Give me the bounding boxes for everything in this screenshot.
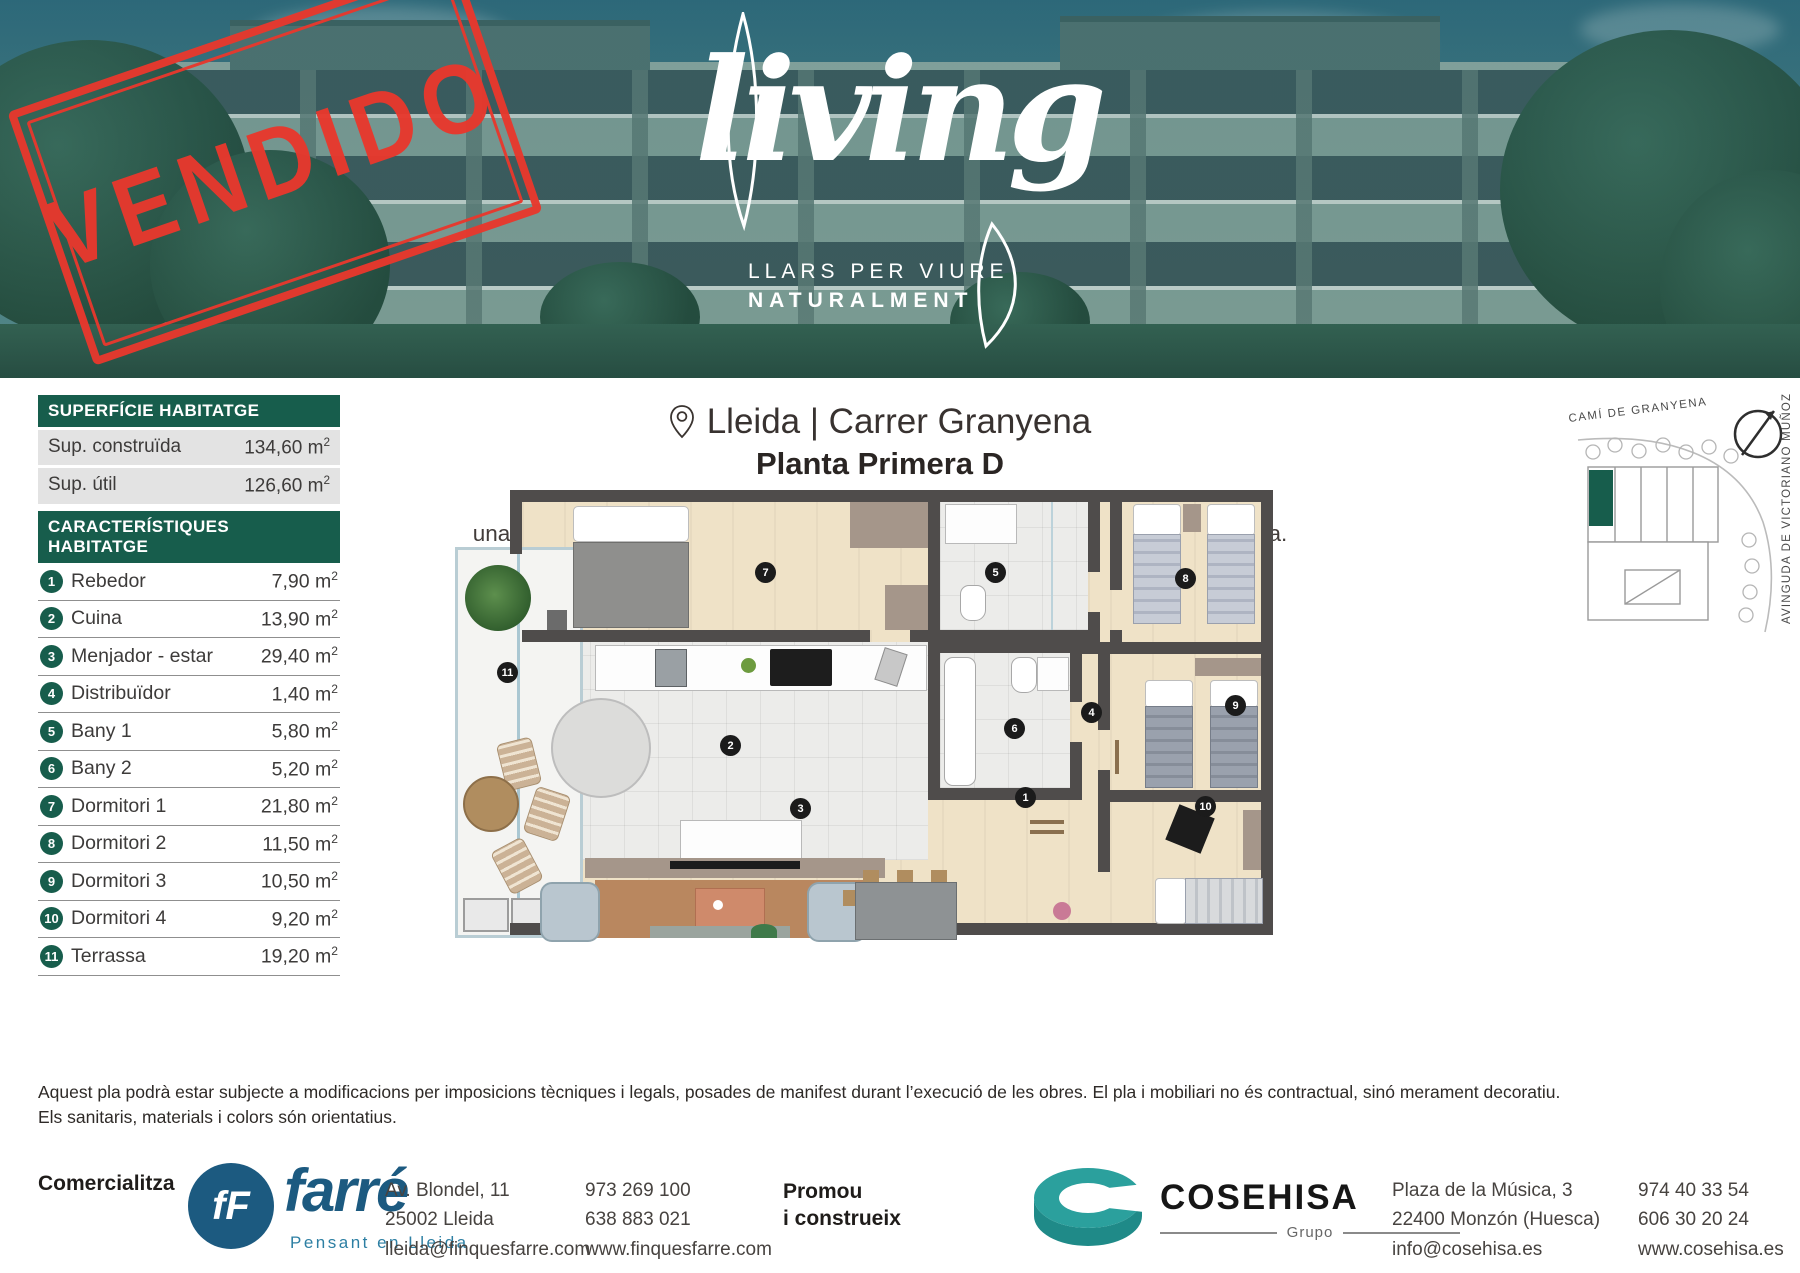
room-label: Bany 2 xyxy=(71,757,132,780)
group-label: Grupo xyxy=(1287,1224,1334,1241)
doorway xyxy=(1070,702,1082,742)
bed-pillows xyxy=(1207,504,1255,536)
wall xyxy=(928,630,1100,653)
toilet xyxy=(960,585,986,621)
doorway xyxy=(1088,572,1100,612)
wall xyxy=(1261,490,1273,935)
bed-pillows xyxy=(1133,504,1181,536)
room-label: Dormitori 3 xyxy=(71,870,166,893)
divider-line xyxy=(1160,1232,1277,1234)
table-row: Sup. construïda 134,60 m2 xyxy=(38,430,340,465)
plan-marker: 2 xyxy=(720,735,741,756)
floor-subtitle: Planta Primera D xyxy=(430,446,1330,482)
room-area: 13,90 m2 xyxy=(261,607,338,632)
room-number-badge: 3 xyxy=(40,645,63,668)
address-line: 25002 Lleida xyxy=(385,1205,590,1234)
bath-sink-counter xyxy=(945,504,1017,544)
room-area: 1,40 m2 xyxy=(272,682,338,707)
list-item: 4 Distribuïdor 1,40 m2 xyxy=(38,676,340,714)
hall-bench xyxy=(1030,830,1064,834)
plant xyxy=(751,924,777,938)
plan-marker: 11 xyxy=(497,662,518,683)
plan-marker: 4 xyxy=(1081,702,1102,723)
bed-pillows xyxy=(1145,680,1193,708)
list-item: 9 Dormitori 3 10,50 m2 xyxy=(38,863,340,901)
plan-marker: 6 xyxy=(1004,718,1025,739)
flowers xyxy=(1053,902,1071,920)
room-area: 5,20 m2 xyxy=(272,757,338,782)
row-label: Sup. construïda xyxy=(48,436,181,459)
phone-number: 973 269 100 xyxy=(585,1176,772,1205)
desk xyxy=(1195,658,1261,676)
room-area: 11,50 m2 xyxy=(262,832,338,857)
phone-number: 638 883 021 xyxy=(585,1205,772,1234)
plan-marker: 3 xyxy=(790,798,811,819)
armchair xyxy=(540,882,600,942)
room-label: Cuina xyxy=(71,607,122,630)
kitchen-table xyxy=(551,698,651,798)
room-area: 19,20 m2 xyxy=(261,944,338,969)
list-item: 10 Dormitori 4 9,20 m2 xyxy=(38,901,340,939)
row-value: 126,60 m2 xyxy=(244,474,330,497)
hall-bench xyxy=(1030,820,1064,824)
room-area: 21,80 m2 xyxy=(261,794,338,819)
plan-marker: 9 xyxy=(1225,695,1246,716)
dining-chair xyxy=(897,870,913,882)
room-number-badge: 2 xyxy=(40,607,63,630)
wall xyxy=(1082,642,1273,654)
features-panel: CARACTERÍSTIQUES HABITATGE 1 Rebedor 7,9… xyxy=(38,511,340,976)
room-number-badge: 10 xyxy=(40,907,63,930)
commercializer-label: Comercialitza xyxy=(38,1172,175,1196)
logo-tagline-2: NATURALMENT xyxy=(748,289,973,313)
row-label: Sup. útil xyxy=(48,474,117,497)
room-label: Dormitori 1 xyxy=(71,795,166,818)
room-area: 5,80 m2 xyxy=(272,719,338,744)
location-title-row: Lleida | Carrer Granyena xyxy=(430,402,1330,442)
room-label: Terrassa xyxy=(71,945,146,968)
plan-marker: 10 xyxy=(1195,796,1216,817)
tv xyxy=(670,861,800,869)
room-number-badge: 11 xyxy=(40,945,63,968)
dining-chair xyxy=(843,890,855,906)
plan-marker: 5 xyxy=(985,562,1006,583)
flyer-page: living LLARS PER VIURE NATURALMENT VENDI… xyxy=(0,0,1800,1273)
farre-address-block: Av. Blondel, 11 25002 Lleida lleida@finq… xyxy=(385,1176,590,1264)
row-value: 134,60 m2 xyxy=(244,436,330,459)
terrace-table xyxy=(463,776,519,832)
bed-duvet xyxy=(1210,706,1258,788)
wardrobe xyxy=(850,502,928,548)
surface-panel-title: SUPERFÍCIE HABITATGE xyxy=(38,395,340,427)
phone-number: 974 40 33 54 xyxy=(1638,1176,1784,1205)
street-label-top: CAMÍ DE GRANYENA xyxy=(1568,395,1708,425)
bathtub xyxy=(944,657,976,786)
terrace-plant xyxy=(465,565,531,631)
room-number-badge: 9 xyxy=(40,870,63,893)
bed-duvet xyxy=(1145,706,1193,788)
shower-glass xyxy=(1051,502,1053,630)
hall-bench xyxy=(1115,740,1119,774)
list-item: 7 Dormitori 1 21,80 m2 xyxy=(38,788,340,826)
room-label: Dormitori 4 xyxy=(71,907,166,930)
room-label: Dormitori 2 xyxy=(71,832,166,855)
address-line: Plaza de la Música, 3 xyxy=(1392,1176,1600,1205)
room-area: 29,40 m2 xyxy=(261,644,338,669)
location-pin-icon xyxy=(669,404,695,440)
floor-plan: 1 2 3 4 5 6 7 8 9 10 11 xyxy=(455,490,1335,938)
website-text: www.cosehisa.es xyxy=(1638,1235,1784,1264)
bed-duvet xyxy=(1133,534,1181,624)
features-panel-title: CARACTERÍSTIQUES HABITATGE xyxy=(38,511,340,563)
address-line: Av. Blondel, 11 xyxy=(385,1176,590,1205)
room-number-badge: 7 xyxy=(40,795,63,818)
wall xyxy=(1098,790,1273,802)
list-item: 1 Rebedor 7,90 m2 xyxy=(38,563,340,601)
plan-marker: 1 xyxy=(1015,787,1036,808)
room-label: Menjador - estar xyxy=(71,645,213,668)
logo-wordmark: living xyxy=(695,40,1100,182)
farre-monogram: fF xyxy=(212,1184,250,1229)
room-area: 7,90 m2 xyxy=(272,569,338,594)
email-text: info@cosehisa.es xyxy=(1392,1235,1600,1264)
cosehisa-address-block: Plaza de la Música, 3 22400 Monzón (Hues… xyxy=(1392,1176,1600,1264)
room-number-badge: 5 xyxy=(40,720,63,743)
wall xyxy=(510,490,522,554)
doorway xyxy=(870,630,910,642)
address-line: 22400 Monzón (Huesca) xyxy=(1392,1205,1600,1234)
bed-duvet xyxy=(573,542,689,628)
logo-tagline-1: LLARS PER VIURE xyxy=(748,260,1009,284)
terrace-fixture xyxy=(547,610,567,630)
kitchen-cooktop xyxy=(770,649,832,686)
bed-duvet xyxy=(1185,878,1263,924)
room-number-badge: 1 xyxy=(40,570,63,593)
toilet xyxy=(1011,657,1037,693)
cosehisa-wordmark: COSEHISA xyxy=(1160,1178,1359,1218)
kitchen-island xyxy=(680,820,802,860)
plan-marker: 7 xyxy=(755,562,776,583)
doorway xyxy=(1110,590,1122,630)
page-title: Lleida | Carrer Granyena xyxy=(707,402,1092,442)
hero-photo: living LLARS PER VIURE NATURALMENT VENDI… xyxy=(0,0,1800,378)
cosehisa-logo xyxy=(1028,1160,1148,1252)
street-label-right: AVINGUDA DE VICTORIANO MUÑOZ xyxy=(1780,393,1793,624)
farre-logo: fF xyxy=(188,1163,274,1249)
list-item: 3 Menjador - estar 29,40 m2 xyxy=(38,638,340,676)
list-item: 5 Bany 1 5,80 m2 xyxy=(38,713,340,751)
table-row: Sup. útil 126,60 m2 xyxy=(38,468,340,503)
terrace-planter xyxy=(463,898,509,932)
doorway xyxy=(1098,730,1110,770)
disclaimer: Aquest pla podrà estar subjecte a modifi… xyxy=(38,1080,1774,1131)
cosehisa-contact-block: 974 40 33 54 606 30 20 24 www.cosehisa.e… xyxy=(1638,1176,1784,1264)
room-label: Distribuïdor xyxy=(71,682,171,705)
kitchen-plate xyxy=(741,658,756,673)
email-text: lleida@finquesfarre.com xyxy=(385,1235,590,1264)
dining-chair xyxy=(931,870,947,882)
nightstand xyxy=(1183,504,1201,532)
wardrobe xyxy=(885,585,928,630)
kitchen-sink xyxy=(655,649,687,687)
room-label: Bany 1 xyxy=(71,720,132,743)
wall xyxy=(1098,802,1110,872)
list-item: 6 Bany 2 5,20 m2 xyxy=(38,751,340,789)
desk xyxy=(1243,810,1261,870)
promoter-label: Promou i construeix xyxy=(783,1178,901,1233)
dining-chair xyxy=(863,870,879,882)
disclaimer-line: Els sanitaris, materials i colors són or… xyxy=(38,1105,1774,1130)
wall xyxy=(510,490,1273,502)
room-label: Rebedor xyxy=(71,570,146,593)
surface-panel: SUPERFÍCIE HABITATGE Sup. construïda 134… xyxy=(38,395,340,504)
room-area: 10,50 m2 xyxy=(261,869,338,894)
wall xyxy=(522,630,928,642)
disclaimer-line: Aquest pla podrà estar subjecte a modifi… xyxy=(38,1080,1774,1105)
table-decor xyxy=(713,900,723,910)
bed-pillows xyxy=(1155,878,1187,924)
website-text: www.finquesfarre.com xyxy=(585,1235,772,1264)
room-number-badge: 4 xyxy=(40,682,63,705)
list-item: 8 Dormitori 2 11,50 m2 xyxy=(38,826,340,864)
room-area: 9,20 m2 xyxy=(272,907,338,932)
list-item: 11 Terrassa 19,20 m2 xyxy=(38,938,340,976)
room-number-badge: 8 xyxy=(40,832,63,855)
farre-contact-block: 973 269 100 638 883 021 www.finquesfarre… xyxy=(585,1176,772,1264)
site-map: CAMÍ DE GRANYENA AVINGUDA DE VICTORIANO … xyxy=(1553,392,1798,637)
living-logo: living LLARS PER VIURE NATURALMENT xyxy=(640,12,1100,352)
wall xyxy=(928,788,1082,800)
bath-sink-counter xyxy=(1037,657,1069,691)
phone-number: 606 30 20 24 xyxy=(1638,1205,1784,1234)
highlighted-unit xyxy=(1589,470,1613,526)
room-number-badge: 6 xyxy=(40,757,63,780)
bed-duvet xyxy=(1207,534,1255,624)
dining-table xyxy=(855,882,957,940)
list-item: 2 Cuina 13,90 m2 xyxy=(38,601,340,639)
bed-pillows xyxy=(573,506,689,542)
plan-marker: 8 xyxy=(1175,568,1196,589)
